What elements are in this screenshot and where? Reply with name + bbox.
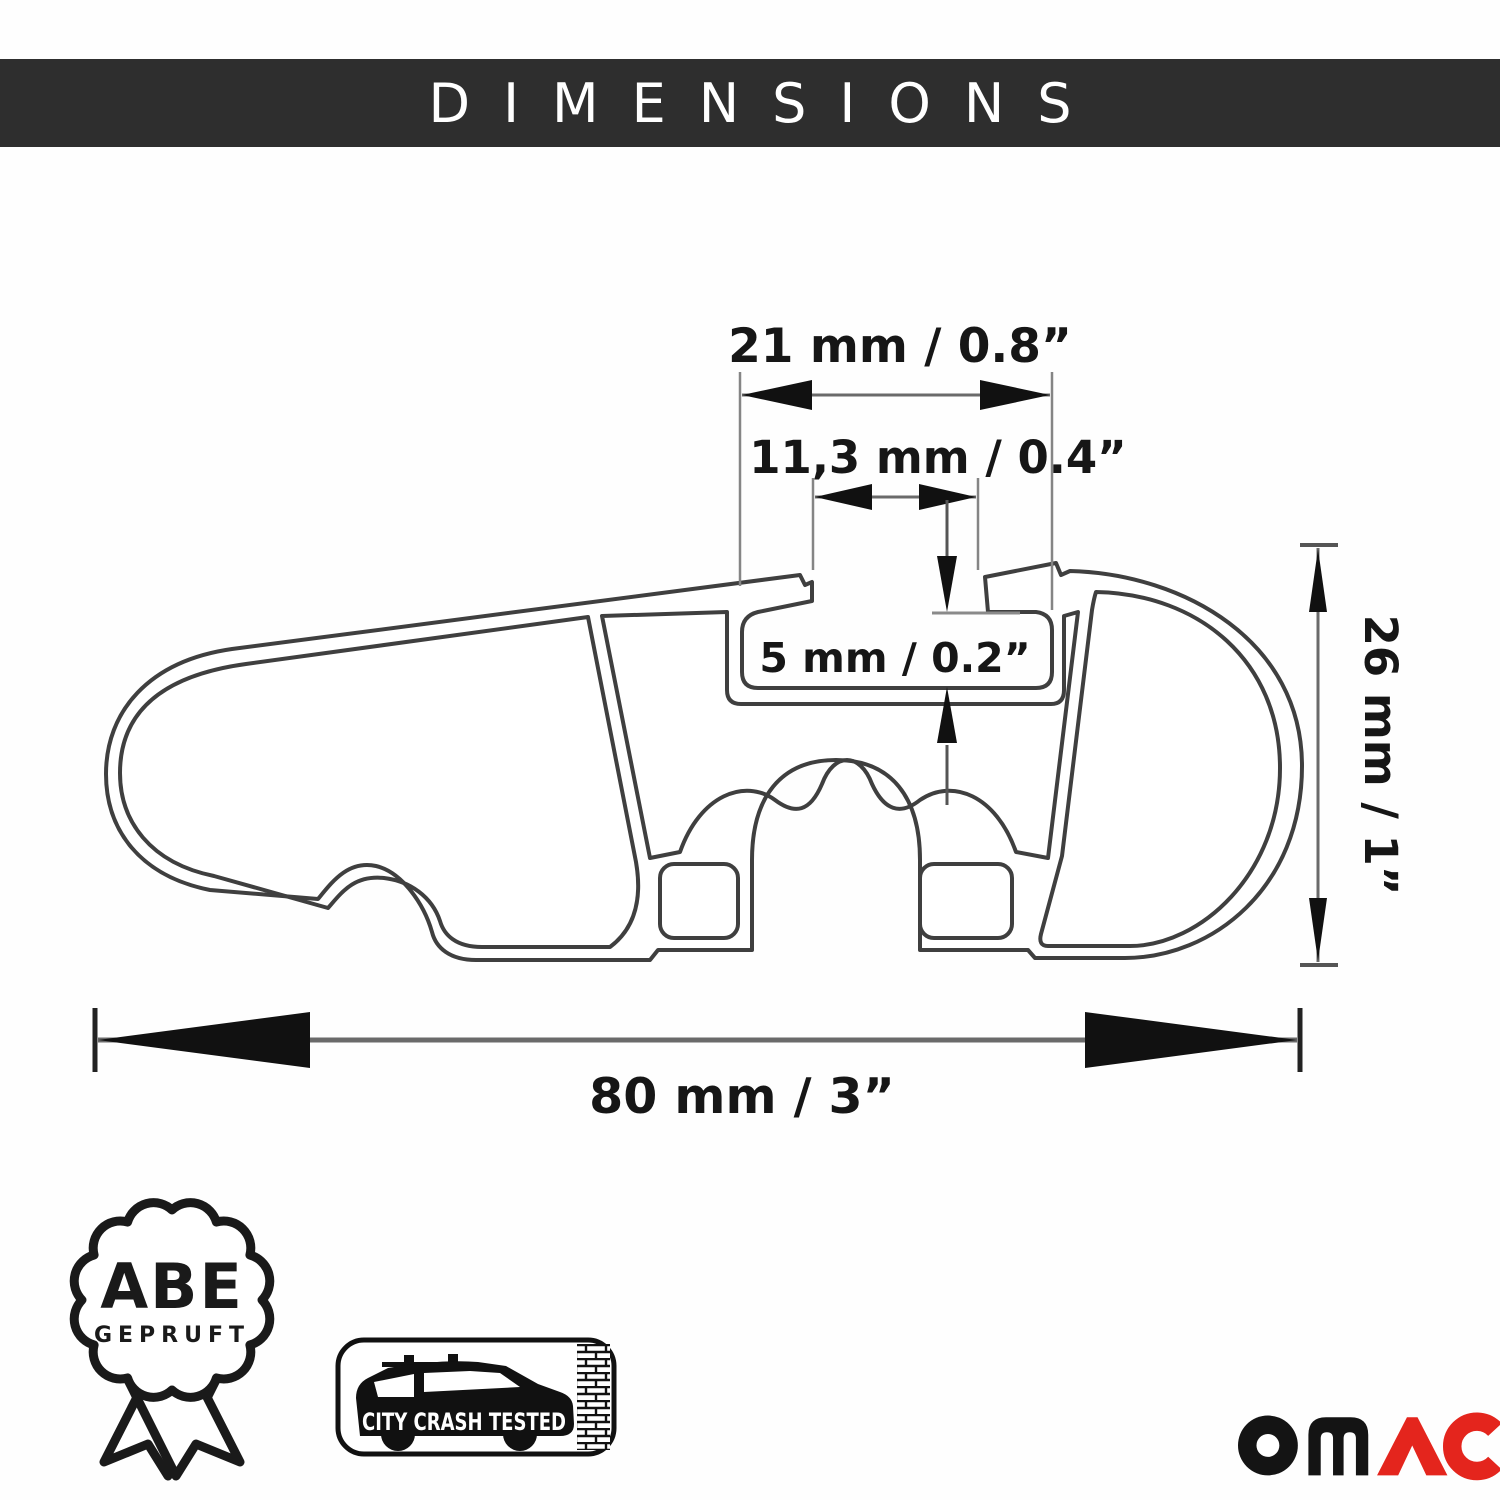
omac-logo <box>1238 1416 1495 1476</box>
dim-80mm: 80 mm / 3” <box>95 1008 1300 1125</box>
dimensions-infographic: DIMENSIONS <box>0 0 1500 1500</box>
logo-letter-o-hole <box>1256 1434 1279 1457</box>
dim-113mm: 11,3 mm / 0.4” <box>749 431 1127 510</box>
abe-badge-subtitle: GEPRUFT <box>94 1323 250 1348</box>
dim-21mm: 21 mm / 0.8” <box>728 319 1072 410</box>
logo-letter-a <box>1377 1417 1447 1475</box>
abe-badge: ABE GEPRUFT <box>74 1203 270 1476</box>
logo-letter-c <box>1452 1422 1495 1471</box>
dim-21mm-arrow-left <box>742 380 812 410</box>
dim-label-5mm: 5 mm / 0.2” <box>759 634 1030 682</box>
crash-test-badge: CITY CRASH TESTED <box>338 1340 614 1454</box>
dim-label-26mm: 26 mm / 1” <box>1354 615 1407 896</box>
crash-badge-brick-wall <box>577 1344 610 1450</box>
crash-badge-label: CITY CRASH TESTED <box>362 1408 566 1436</box>
dim-label-21mm: 21 mm / 0.8” <box>728 319 1072 374</box>
dim-21mm-arrow-right <box>980 380 1050 410</box>
dim-26mm: 26 mm / 1” <box>1300 545 1407 965</box>
dim-label-80mm: 80 mm / 3” <box>589 1068 895 1125</box>
dim-26mm-arrow-up <box>1309 549 1327 612</box>
diagram-canvas: 21 mm / 0.8” 11,3 mm / 0.4” 5 mm / 0.2” … <box>0 0 1500 1500</box>
crossbar-profile-drawing <box>106 563 1302 960</box>
profile-outer-contour <box>106 563 1302 960</box>
dim-80mm-arrow-right <box>1085 1012 1297 1068</box>
dim-113mm-arrow-left <box>815 484 872 510</box>
dim-80mm-arrow-left <box>98 1012 310 1068</box>
dim-26mm-arrow-down <box>1309 898 1327 961</box>
dim-5mm-arrow-down <box>937 556 957 612</box>
abe-badge-title: ABE <box>100 1250 244 1323</box>
car-roof-stub-1 <box>404 1355 414 1363</box>
dim-label-113mm: 11,3 mm / 0.4” <box>749 431 1127 484</box>
logo-letter-m <box>1308 1417 1368 1475</box>
car-roof-stub-2 <box>448 1354 458 1362</box>
